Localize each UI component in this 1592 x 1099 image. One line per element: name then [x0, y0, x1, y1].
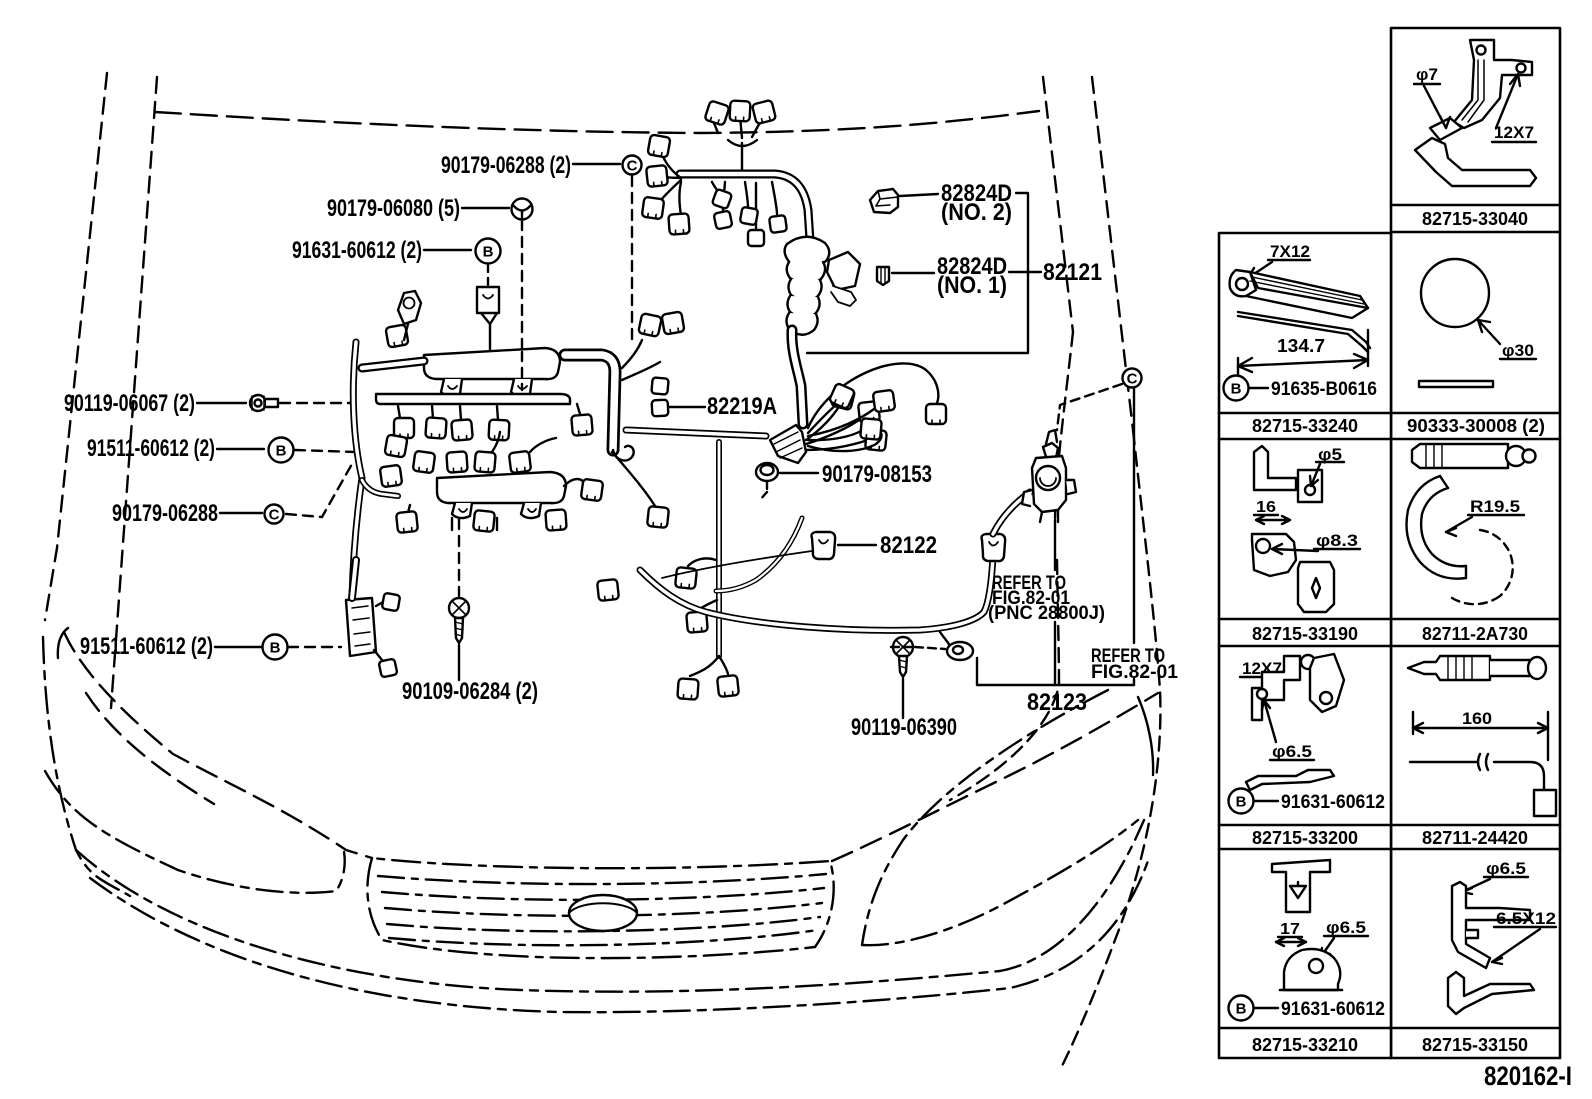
svg-text:82715-33210: 82715-33210: [1252, 1034, 1358, 1055]
svg-text:φ7: φ7: [1416, 65, 1438, 84]
svg-text:φ6.5: φ6.5: [1272, 742, 1312, 761]
svg-text:φ6.5: φ6.5: [1486, 859, 1526, 878]
svg-text:90109-06284 (2): 90109-06284 (2): [402, 678, 538, 705]
svg-text:160: 160: [1462, 709, 1492, 728]
svg-text:820162-I: 820162-I: [1484, 1061, 1572, 1091]
svg-text:(NO. 2): (NO. 2): [941, 199, 1012, 226]
svg-text:12X7: 12X7: [1494, 123, 1534, 142]
svg-text:90179-08153: 90179-08153: [822, 461, 932, 488]
svg-text:82715-33190: 82715-33190: [1252, 623, 1358, 644]
svg-text:82123: 82123: [1027, 689, 1087, 716]
svg-text:90179-06080 (5): 90179-06080 (5): [327, 195, 460, 222]
svg-text:91631-60612: 91631-60612: [1281, 999, 1385, 1020]
svg-text:φ6.5: φ6.5: [1326, 918, 1366, 937]
svg-text:82715-33240: 82715-33240: [1252, 415, 1358, 436]
svg-text:17: 17: [1280, 921, 1300, 938]
svg-text:R19.5: R19.5: [1470, 497, 1520, 516]
svg-text:82715-33150: 82715-33150: [1422, 1034, 1528, 1055]
svg-text:82219A: 82219A: [707, 393, 777, 420]
svg-text:91631-60612: 91631-60612: [1281, 792, 1385, 813]
svg-text:134.7: 134.7: [1277, 336, 1325, 356]
svg-text:82711-24420: 82711-24420: [1422, 827, 1528, 848]
svg-text:91631-60612 (2): 91631-60612 (2): [292, 237, 422, 264]
svg-text:91511-60612 (2): 91511-60612 (2): [87, 435, 215, 462]
svg-text:82122: 82122: [880, 532, 937, 559]
svg-text:(PNC 28800J): (PNC 28800J): [988, 603, 1105, 624]
svg-text:7X12: 7X12: [1270, 242, 1310, 261]
svg-text:(NO. 1): (NO. 1): [937, 272, 1007, 299]
svg-text:91635-B0616: 91635-B0616: [1271, 379, 1377, 400]
svg-text:φ30: φ30: [1502, 341, 1534, 360]
svg-text:90179-06288 (2): 90179-06288 (2): [441, 152, 571, 179]
svg-text:82121: 82121: [1043, 259, 1102, 286]
svg-text:82715-33040: 82715-33040: [1422, 208, 1528, 229]
svg-text:82715-33200: 82715-33200: [1252, 827, 1358, 848]
svg-text:82711-2A730: 82711-2A730: [1422, 623, 1528, 644]
svg-text:91511-60612 (2): 91511-60612 (2): [80, 633, 213, 660]
svg-text:16: 16: [1256, 499, 1276, 516]
svg-text:90333-30008 (2): 90333-30008 (2): [1407, 415, 1545, 436]
svg-text:6.5X12: 6.5X12: [1496, 909, 1556, 928]
svg-text:90119-06067 (2): 90119-06067 (2): [64, 390, 195, 417]
svg-text:90179-06288: 90179-06288: [112, 500, 218, 527]
svg-text:φ8.3: φ8.3: [1316, 531, 1358, 550]
